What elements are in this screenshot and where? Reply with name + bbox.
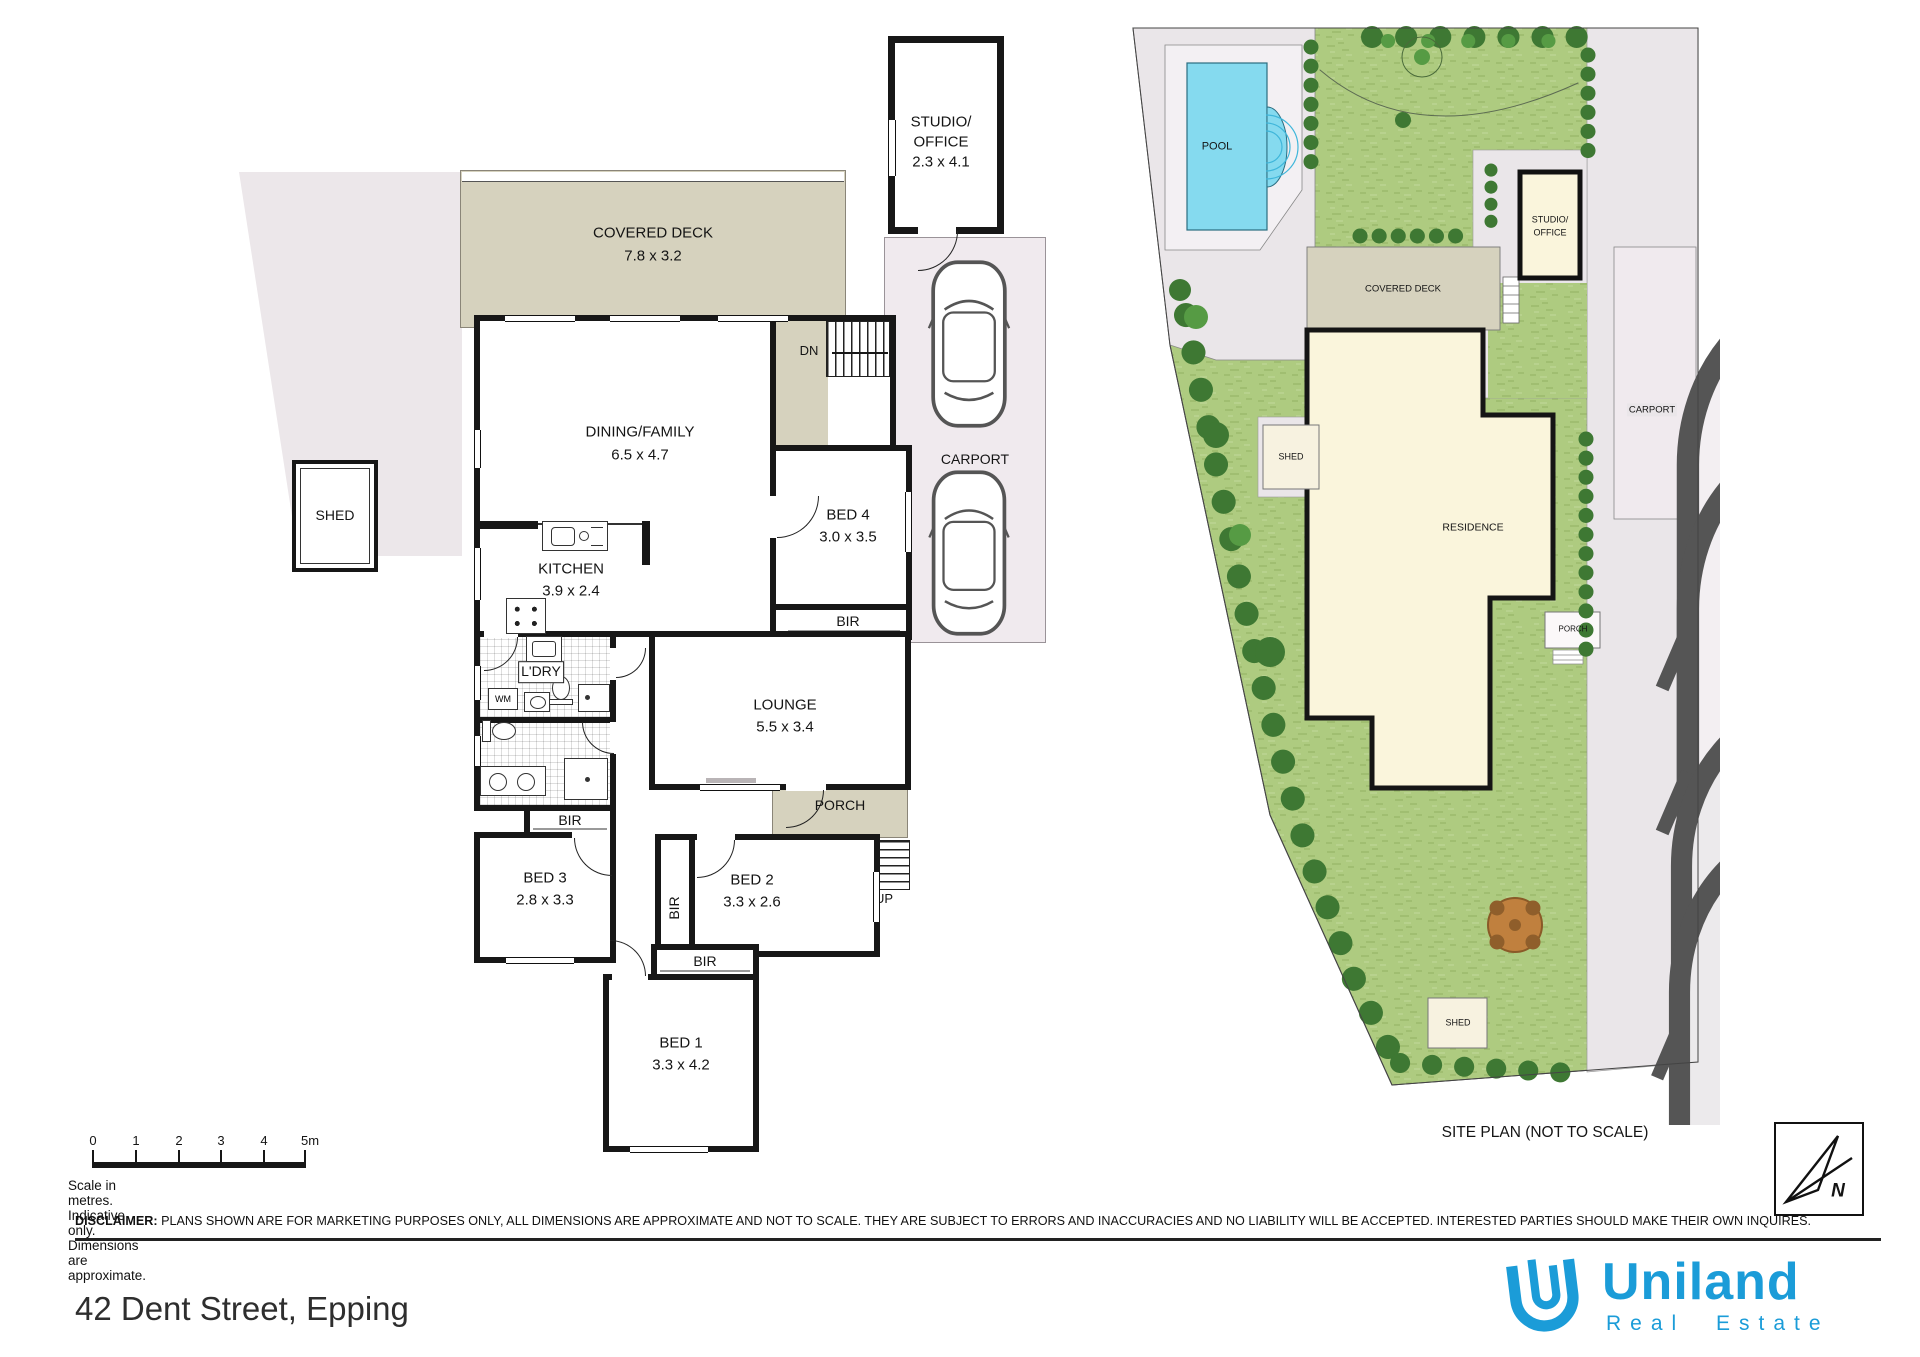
site-deck-stairs [1503,277,1519,323]
site-shed-left-label: SHED [1278,451,1303,464]
scale-number: 0 [89,1132,96,1150]
divider-rule [75,1238,1881,1241]
kitchen-wall-stub [480,521,538,529]
shower [564,758,608,800]
scale-number: 4 [260,1132,267,1150]
bir-label: BIR [558,811,581,831]
site-porch-label: PORCH [1559,623,1588,634]
dining-label: DINING/FAMILY [586,422,695,443]
window [905,492,912,552]
porch-label: PORCH [815,796,866,816]
kitchen-label: KITCHEN [538,559,604,580]
tub-bowl [530,696,546,709]
scale-number: 5m [301,1132,319,1150]
washing-machine-label: WM [495,694,511,704]
bed4-label: BED 4 [826,505,869,526]
room-dining-family [474,315,776,637]
scale-tick [220,1150,222,1162]
studio-office-label2: OFFICE [914,132,969,153]
site-studio-label2: OFFICE [1534,227,1567,240]
brand-sub: Real Estate [1606,1312,1830,1336]
north-label: N [1831,1179,1845,1206]
studio-window [888,120,896,176]
bir-label: BIR [836,612,859,632]
disclaimer: DISCLAIMER: PLANS SHOWN ARE FOR MARKETIN… [75,1214,1885,1228]
scale-tick [178,1150,180,1162]
site-carport-label: CARPORT [1627,403,1677,416]
disclaimer-text: PLANS SHOWN ARE FOR MARKETING PURPOSES O… [161,1214,1811,1228]
shower-drain [585,695,590,700]
car-icon [926,256,1012,432]
site-shed-bottom-label: SHED [1445,1017,1470,1030]
basin [489,773,507,791]
site-studio-label: STUDIO/ [1532,214,1569,227]
studio-office-label: STUDIO/ [911,112,972,133]
toilet [492,722,516,740]
brand-name: Uniland [1602,1252,1800,1312]
kitchen-wall-stub [642,521,650,565]
scale-tick [135,1150,137,1162]
covered-deck-dims: 7.8 x 3.2 [624,246,682,267]
shed-label: SHED [316,506,355,526]
bed3-label: BED 3 [523,868,566,889]
window [873,872,880,922]
laundry-tub [524,692,550,712]
stove [506,598,546,634]
floorplan-page: CARPORT COVERED DECK 7.8 x 3.2 SHED UP D… [0,0,1920,1357]
window [700,784,780,791]
dn-stairs [826,321,890,377]
site-plan-title: SITE PLAN (NOT TO SCALE) [1442,1122,1649,1144]
landing-deck-strip [776,321,828,445]
window [474,430,481,468]
window [474,736,481,766]
washing-machine: WM [488,688,518,710]
property-address: 42 Dent Street, Epping [75,1290,409,1328]
site-plan-graphic [1120,15,1720,1125]
sink-bowl [551,527,575,546]
studio-office-dims: 2.3 x 4.1 [912,152,970,173]
scale-tick [304,1150,306,1162]
sliding-door-pane [706,778,756,783]
kitchen-dims: 3.9 x 2.4 [542,581,600,602]
toilet-cistern [482,720,491,742]
toilet-cistern [549,699,573,705]
garden-table [1488,898,1542,952]
north-arrow: N [1774,1122,1864,1216]
compass-icon [1776,1124,1862,1214]
deck-window [718,315,788,322]
drainer [591,527,603,546]
bir-label: BIR [693,952,716,972]
window [630,1146,708,1153]
scale-number: 2 [175,1132,182,1150]
scale-number: 1 [132,1132,139,1150]
bed2-label: BED 2 [730,870,773,891]
brand-logo: Uniland Real Estate [1502,1252,1902,1352]
scale-number: 3 [217,1132,224,1150]
bed1-label: BED 1 [659,1033,702,1054]
vanity [480,766,546,796]
bir-label: BIR [665,896,685,919]
site-residence-label: RESIDENCE [1442,521,1503,536]
bed4-dims: 3.0 x 3.5 [819,527,877,548]
deck-window [610,315,680,322]
shower [578,684,610,712]
bed3-dims: 2.8 x 3.3 [516,890,574,911]
scale-bar-line [92,1162,306,1168]
lounge-dims: 5.5 x 3.4 [756,717,814,738]
scale-note: Scale in metres. Indicative only. Dimens… [68,1178,146,1283]
window [474,666,481,700]
dining-dims: 6.5 x 4.7 [611,445,669,466]
bed2-dims: 3.3 x 2.6 [723,892,781,913]
laundry-label: L'DRY [518,661,564,683]
laundry-sink-bowl [532,641,556,657]
basin [517,773,535,791]
bed1-dims: 3.3 x 4.2 [652,1055,710,1076]
deck-window-band [462,172,844,182]
brand-logo-mark-icon [1502,1256,1594,1348]
covered-deck-label: COVERED DECK [593,223,713,244]
sink-tap [579,531,589,541]
door-arc [616,648,646,678]
site-porch-steps [1553,650,1583,664]
scale-tick [92,1150,94,1162]
scale-tick [263,1150,265,1162]
door-arc [610,940,646,976]
car-icon [926,468,1012,638]
window [506,957,574,964]
deck-window [505,315,575,322]
disclaimer-label: DISCLAIMER: [75,1214,158,1228]
dn-stairs-label: DN [798,342,821,360]
dn-arrow-line [832,352,888,354]
lounge-label: LOUNGE [753,695,816,716]
kitchen-sink [542,521,608,551]
laundry-sink [526,636,562,662]
site-deck-label: COVERED DECK [1365,282,1441,295]
shower-drain [585,777,590,782]
site-pool-label: POOL [1202,139,1233,154]
carport-label: CARPORT [938,450,1012,470]
window [474,548,481,600]
